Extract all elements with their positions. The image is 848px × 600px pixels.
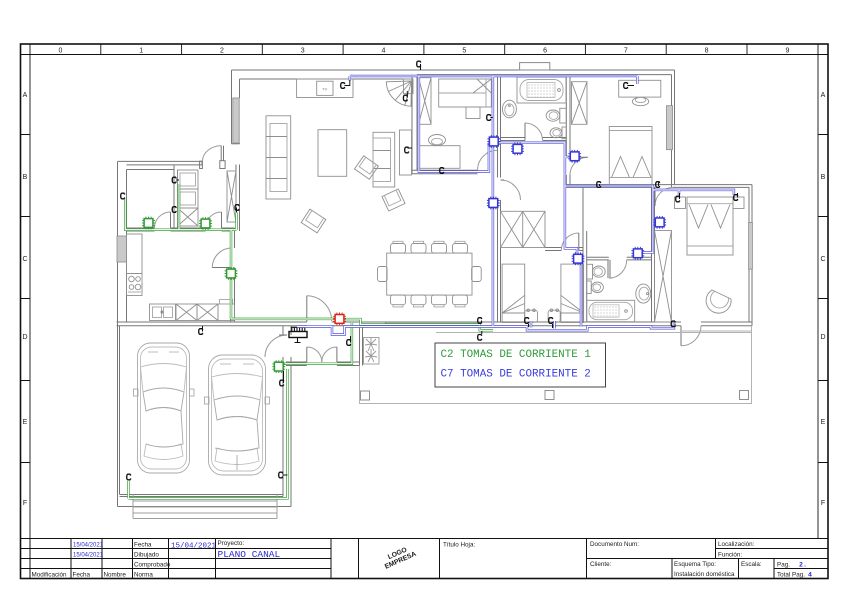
- svg-text:C: C: [820, 256, 825, 263]
- svg-text:15/04/2021: 15/04/2021: [171, 542, 217, 550]
- svg-text:Proyecto:: Proyecto:: [218, 540, 245, 547]
- svg-text:Norma: Norma: [134, 571, 153, 578]
- svg-text:PLANO CANAL: PLANO CANAL: [218, 549, 281, 560]
- svg-text:6: 6: [543, 47, 547, 54]
- svg-text:Total Pag.: Total Pag.: [777, 571, 805, 578]
- svg-text:TV: TV: [322, 87, 327, 92]
- svg-text:9: 9: [785, 47, 789, 54]
- svg-text:15/04/2021: 15/04/2021: [73, 553, 104, 559]
- svg-text:F: F: [23, 500, 27, 507]
- svg-text:B: B: [23, 174, 28, 181]
- svg-text:D: D: [22, 334, 27, 341]
- svg-text:F: F: [821, 500, 825, 507]
- svg-text:E: E: [23, 419, 28, 426]
- svg-text:4: 4: [382, 47, 386, 54]
- svg-text:2: 2: [220, 47, 224, 54]
- svg-text:Documento Num:: Documento Num:: [590, 541, 639, 548]
- svg-text:A: A: [821, 92, 826, 99]
- svg-text:4: 4: [808, 571, 812, 578]
- svg-text:C2 TOMAS DE CORRIENTE 1: C2 TOMAS DE CORRIENTE 1: [441, 349, 592, 361]
- svg-text:C: C: [22, 256, 27, 263]
- svg-text:Escala:: Escala:: [741, 561, 762, 568]
- svg-text:Fecha: Fecha: [73, 571, 91, 578]
- svg-text:B: B: [821, 174, 826, 181]
- svg-text:Fecha: Fecha: [134, 542, 152, 549]
- svg-text:5: 5: [462, 47, 466, 54]
- svg-text:E: E: [821, 419, 826, 426]
- svg-text:3: 3: [301, 47, 305, 54]
- svg-text:Nombre: Nombre: [104, 571, 127, 578]
- svg-text:C7 TOMAS DE CORRIENTE 2: C7 TOMAS DE CORRIENTE 2: [441, 369, 591, 381]
- svg-text:Función:: Función:: [718, 551, 742, 558]
- svg-text:0: 0: [58, 47, 62, 54]
- svg-text:Título Hoja:: Título Hoja:: [443, 542, 475, 549]
- svg-text:Esquema Tipo:: Esquema Tipo:: [674, 561, 716, 568]
- svg-text:15/04/2021: 15/04/2021: [73, 543, 104, 549]
- svg-text:Comprobado: Comprobado: [134, 562, 171, 569]
- svg-text:Cliente:: Cliente:: [590, 561, 612, 568]
- svg-text:Modificación: Modificación: [32, 571, 67, 578]
- svg-text:Localización:: Localización:: [718, 541, 755, 548]
- svg-text:1: 1: [139, 47, 143, 54]
- svg-text:Instalación doméstica: Instalación doméstica: [674, 571, 735, 578]
- svg-text:D: D: [820, 334, 825, 341]
- svg-text:Dibujado: Dibujado: [134, 552, 159, 559]
- svg-text:Pag.: Pag.: [777, 562, 790, 569]
- svg-text:7: 7: [624, 47, 628, 54]
- svg-text:A: A: [23, 92, 28, 99]
- svg-text:2.: 2.: [799, 562, 807, 569]
- svg-text:8: 8: [705, 47, 709, 54]
